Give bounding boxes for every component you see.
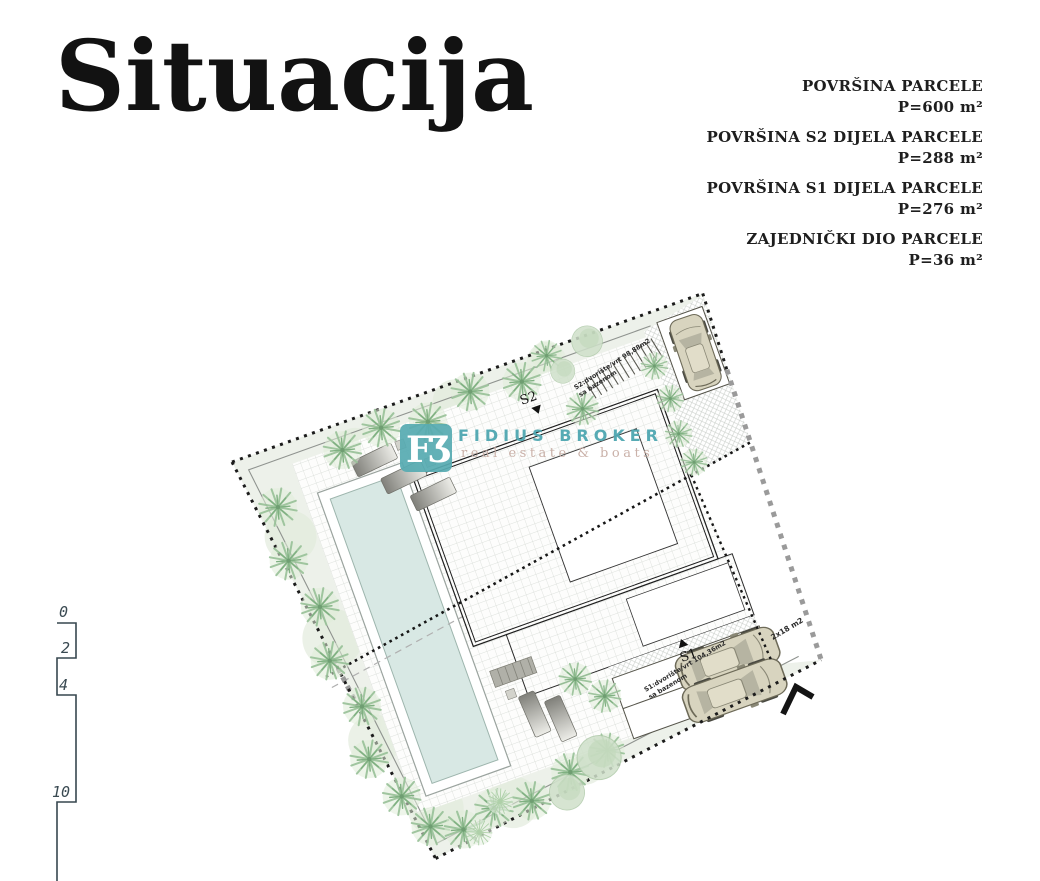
site-plan-page: Situacija POVRŠINA PARCELE P=600 m² POVR… <box>0 0 1040 881</box>
site-plan-drawing: 0 2 4 10 <box>0 0 1040 881</box>
corner-chevron-mark <box>783 687 813 714</box>
scale-tick-0: 0 <box>59 603 68 621</box>
logo-monogram: FƷ <box>406 429 451 471</box>
scale-bar-line <box>57 623 76 881</box>
parcel-group: S2 S1 S2:dvorište/vrt 98,88m2 sa bazenom… <box>229 285 853 881</box>
scale-tick-10: 10 <box>52 783 70 801</box>
watermark-brand-name: FIDIUS BROKER <box>458 426 663 445</box>
scale-bar: 0 2 4 10 <box>52 603 76 881</box>
scale-tick-2: 2 <box>61 639 70 657</box>
scale-tick-4: 4 <box>59 676 68 694</box>
watermark-tagline: real estate & boats <box>461 446 653 461</box>
